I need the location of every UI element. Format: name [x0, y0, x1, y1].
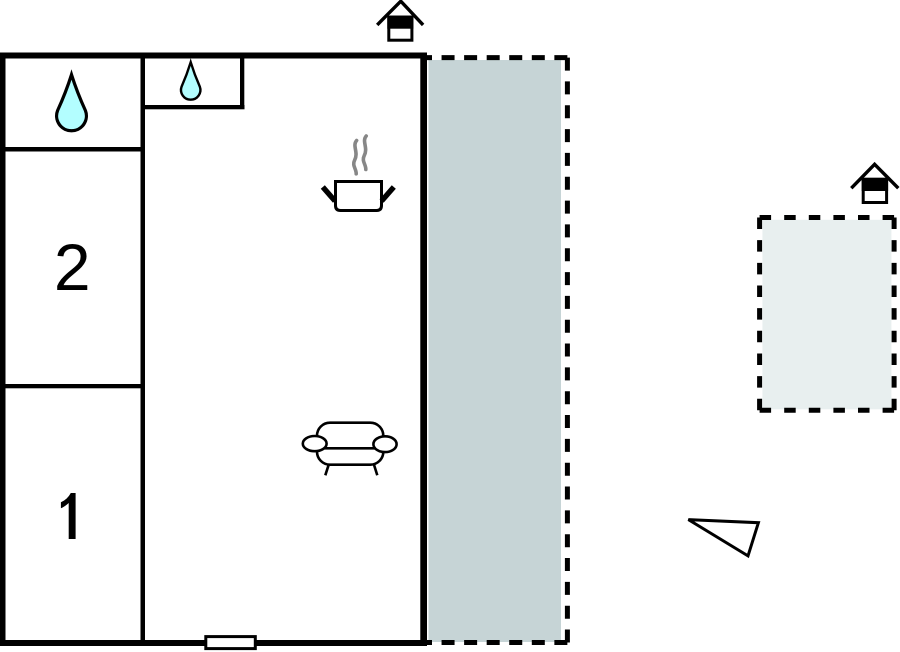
svg-text:2: 2 — [54, 230, 91, 304]
